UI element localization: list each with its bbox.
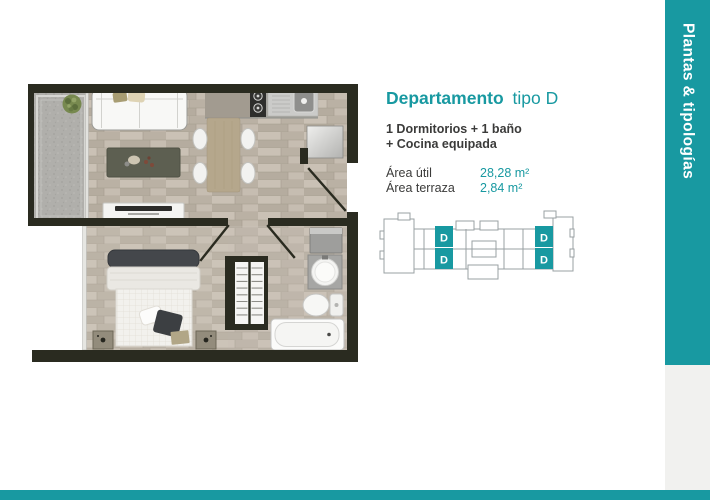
area-label: Área terraza [386,182,480,196]
bottom-accent-bar [0,490,710,500]
bedroom-window [83,226,87,350]
sidebar-tab: Plantas & tipologías [665,0,710,365]
title-suffix: tipo D [513,88,559,108]
terrace [34,93,88,223]
sidebar-label: Plantas & tipologías [679,0,697,365]
sidebar-lower-panel [665,365,710,490]
unit-label: D [540,233,548,245]
wardrobe-rails [225,256,268,330]
area-value: 28,28 m² [480,167,529,181]
area-row-terraza: Área terraza 2,84 m² [386,182,606,196]
unit-info: Departamento tipo D 1 Dormitorios + 1 ba… [386,88,606,196]
building-key-plan: D D D D [376,205,578,287]
unit-label: D [540,255,548,267]
area-label: Área útil [386,167,480,181]
title-main: Departamento [386,88,504,108]
laundry-cabinet [310,228,342,253]
unit-label: D [440,255,448,267]
tv-console-icon [103,203,184,220]
area-table: Área útil 28,28 m² Área terraza 2,84 m² [386,167,606,195]
unit-features: 1 Dormitorios + 1 baño + Cocina equipada [386,122,606,152]
area-value: 2,84 m² [480,182,522,196]
terrace-window [86,93,89,222]
area-row-util: Área útil 28,28 m² [386,167,606,181]
toilet-icon [303,294,343,316]
apartment-floor-plan [28,84,358,362]
plant-icon [63,95,82,114]
feature-line-2: + Cocina equipada [386,137,606,152]
dining-table-icon [207,118,240,192]
brochure-page: Departamento tipo D 1 Dormitorios + 1 ba… [0,0,710,500]
unit-label: D [440,233,448,245]
coffee-table-icon [107,148,180,177]
page-title: Departamento tipo D [386,88,606,109]
bed-icon [107,250,200,346]
entry-mirror-closet [307,126,343,158]
bathroom-sink-icon [308,255,342,289]
bathtub-icon [271,319,344,350]
feature-line-1: 1 Dormitorios + 1 baño [386,122,606,137]
